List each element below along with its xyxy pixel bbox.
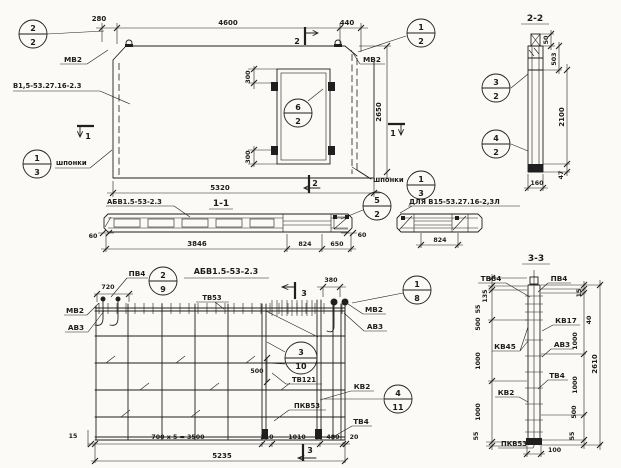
label-pkv53: ПКВ53 bbox=[294, 402, 320, 410]
callout-num: 1 bbox=[418, 23, 424, 32]
embed-mark bbox=[401, 216, 405, 220]
panel-outline bbox=[113, 46, 374, 179]
callout-1-2: 1 2 bbox=[407, 19, 435, 47]
callout-den: 2 bbox=[418, 37, 424, 46]
dim-right-1000a: 1000 bbox=[572, 332, 579, 350]
door-loop bbox=[328, 82, 335, 91]
label-mv2-left: МВ2 bbox=[64, 55, 82, 64]
callout-6-2: 6 2 bbox=[284, 99, 312, 127]
section-3-3-view: 3-3 ТВ84 ПВ4 КВ17 АВ3 КВ45 ТВ4 КВ2 ПКВ53… bbox=[473, 254, 603, 457]
callout-4-11: 4 11 bbox=[384, 385, 412, 413]
column-inner bbox=[529, 46, 539, 164]
dim-4600: 4600 bbox=[218, 19, 238, 27]
callout-num: 1 bbox=[418, 175, 424, 184]
callout-den: 8 bbox=[414, 294, 420, 303]
section-mark-3-bottom: 3 bbox=[307, 446, 313, 455]
dim-500-cage: 500 bbox=[250, 368, 264, 375]
door-opening bbox=[277, 69, 330, 164]
callout-2-2: 2 2 bbox=[19, 20, 47, 48]
s11-leaders bbox=[106, 206, 363, 219]
callout-num: 5 bbox=[374, 196, 380, 205]
label-kv45: КВ45 bbox=[494, 342, 516, 351]
panel-hidden-edges bbox=[119, 54, 357, 175]
callout-num: 2 bbox=[30, 24, 36, 33]
callout-3-2: 3 2 bbox=[482, 74, 510, 102]
label-kv2-s33: КВ2 bbox=[498, 388, 515, 397]
label-detail: ДЛЯ В15-53.27.16-2,3Л bbox=[409, 198, 500, 206]
void bbox=[182, 219, 208, 227]
embed-mark bbox=[455, 216, 459, 220]
dim-left-500: 500 bbox=[475, 317, 482, 331]
panel-dim-lines bbox=[96, 23, 391, 197]
void bbox=[114, 219, 140, 227]
label-pkv53-s33: ПКВ53 bbox=[501, 440, 527, 448]
callout-den: 10 bbox=[295, 362, 307, 371]
section-2-2-title: 2-2 bbox=[527, 14, 543, 24]
dim-15: 15 bbox=[69, 433, 78, 440]
dim-5235: 5235 bbox=[212, 452, 232, 460]
dim-right-40: 40 bbox=[586, 315, 593, 324]
embed-mark bbox=[333, 215, 337, 219]
door-loop bbox=[271, 82, 278, 91]
dim-left-55b: 55 bbox=[473, 432, 480, 441]
callout-4-2: 4 2 bbox=[482, 130, 510, 158]
cage-chords bbox=[95, 308, 345, 440]
label-shponki-left: шпонки bbox=[56, 159, 87, 167]
hook-head bbox=[116, 297, 121, 302]
label-mv2-cage-left: МВ2 bbox=[66, 306, 84, 315]
callout-den: 3 bbox=[418, 189, 424, 198]
section-mark-2-top: 2 bbox=[294, 37, 300, 46]
strip-outline bbox=[104, 214, 352, 232]
detail-outline bbox=[397, 214, 482, 232]
dim-480: 480 bbox=[326, 434, 340, 441]
loop-anchor bbox=[334, 44, 342, 47]
label-mv2-cage-right: МВ2 bbox=[365, 305, 383, 314]
callout-den: 3 bbox=[34, 168, 40, 177]
door-opening-inner bbox=[281, 73, 326, 160]
dim-380: 380 bbox=[324, 277, 338, 284]
label-tv53: ТВ53 bbox=[202, 294, 222, 302]
dim-210: 210 bbox=[260, 434, 274, 441]
dim-824-detail: 824 bbox=[433, 237, 447, 244]
label-shponki-right: шпонки bbox=[373, 176, 404, 184]
label-tv4-s33: ТВ4 bbox=[549, 371, 565, 380]
callout-num: 3 bbox=[493, 78, 499, 87]
cage-cross-bar-ticks bbox=[99, 303, 342, 314]
base-fill bbox=[528, 164, 543, 172]
void bbox=[216, 219, 242, 227]
dim-503: 503 bbox=[551, 52, 558, 65]
section-mark-1-right: 1 bbox=[390, 129, 396, 138]
dim-3846: 3846 bbox=[187, 240, 207, 248]
label-pv4-s33: ПВ4 bbox=[551, 274, 568, 283]
section-mark-2-bottom: 2 bbox=[312, 179, 318, 188]
loop-anchor bbox=[125, 44, 133, 47]
panel-leader-lines bbox=[13, 31, 406, 179]
drawing-sheet: 280 4600 440 5320 2650 300 300 МВ2 МВ2 В… bbox=[0, 0, 621, 468]
label-av3-cage-right: АВ3 bbox=[367, 322, 383, 331]
dim-47: 47 bbox=[558, 171, 565, 180]
callout-shponki-left: 1 3 bbox=[23, 150, 51, 178]
callout-num: 2 bbox=[160, 271, 166, 280]
dim-left-135: 135 bbox=[482, 289, 489, 302]
dim-right-500: 500 bbox=[571, 405, 578, 419]
label-panel-mark: В1,5-53.27.16-2.3 bbox=[13, 82, 82, 90]
void bbox=[250, 219, 274, 227]
callout-1-8: 1 8 bbox=[403, 276, 431, 304]
dim-440: 440 bbox=[340, 19, 355, 27]
dim-1010: 1010 bbox=[288, 434, 306, 441]
callout-3-10: 3 10 bbox=[285, 342, 317, 374]
s11-dim-lines bbox=[98, 233, 357, 252]
hook-head bbox=[101, 297, 106, 302]
cage-title: АБВ1.5-53-2.3 bbox=[194, 267, 259, 276]
callout-den: 11 bbox=[392, 403, 404, 412]
dim-left-1000a: 1000 bbox=[475, 352, 482, 370]
callout-shponki-right: 1 3 bbox=[407, 171, 435, 199]
callout-num: 4 bbox=[395, 389, 401, 398]
base-fill bbox=[526, 438, 542, 445]
detail-v15-view: ДЛЯ В15-53.27.16-2,3Л 824 bbox=[397, 198, 520, 248]
callout-num: 4 bbox=[493, 134, 499, 143]
label-kv17: КВ17 bbox=[555, 316, 577, 325]
s33-dim-lines bbox=[486, 274, 602, 457]
corner-embed bbox=[315, 429, 322, 439]
label-tv84: ТВ84 bbox=[481, 274, 502, 283]
label-pv4: ПВ4 bbox=[129, 269, 146, 278]
dim-300-bottom: 300 bbox=[245, 150, 252, 164]
cage-view: АБВ1.5-53-2.3 ПВ4 ТВ53 МВ2 АВ3 МВ2 АВ3 Т… bbox=[64, 267, 431, 464]
dim-100: 100 bbox=[548, 447, 562, 454]
label-tv121: ТВ121 bbox=[292, 376, 316, 384]
section-cut-bars bbox=[77, 27, 405, 193]
section-2-2-view: 2-2 50 503 2100 47 160 3 2 4 2 bbox=[482, 14, 570, 191]
label-mv2-right: МВ2 bbox=[363, 55, 381, 64]
door-loop bbox=[328, 146, 335, 155]
label-av3-cage-left: АВ3 bbox=[68, 323, 84, 332]
dim-720: 720 bbox=[101, 284, 115, 291]
hook-head bbox=[331, 299, 338, 306]
dim-300-top: 300 bbox=[245, 70, 252, 84]
dim-60-right: 60 bbox=[358, 232, 367, 239]
callout-num: 1 bbox=[34, 154, 40, 163]
loop-hatch bbox=[531, 34, 540, 46]
dim-50: 50 bbox=[543, 35, 550, 44]
dim-824: 824 bbox=[298, 241, 312, 248]
dim-20: 20 bbox=[350, 434, 359, 441]
section-mark-3-top: 3 bbox=[301, 289, 307, 298]
dim-left-1000b: 1000 bbox=[475, 403, 482, 421]
callout-den: 2 bbox=[374, 210, 380, 219]
callout-den: 2 bbox=[295, 117, 301, 126]
callout-num: 1 bbox=[414, 280, 420, 289]
label-av3-s33: АВ3 bbox=[554, 340, 570, 349]
callout-num: 3 bbox=[298, 348, 304, 357]
cage-door-zone bbox=[266, 300, 318, 337]
section-1-1-title: 1-1 bbox=[213, 199, 229, 209]
panel-dim-ticks bbox=[99, 25, 390, 196]
callout-5-2: 5 2 bbox=[363, 192, 391, 220]
hook-head bbox=[342, 299, 349, 306]
label-cage-mark: АБВ1.5-53-2.3 bbox=[107, 198, 162, 206]
cage-hooks bbox=[95, 298, 345, 332]
cage-verticals bbox=[96, 300, 345, 440]
label-kv2: КВ2 bbox=[354, 382, 371, 391]
dim-2650: 2650 bbox=[375, 102, 383, 122]
callout-den: 2 bbox=[493, 92, 499, 101]
dim-right-55: 55 bbox=[569, 432, 576, 441]
dim-650: 650 bbox=[330, 241, 344, 248]
callout-den: 2 bbox=[493, 148, 499, 157]
cage-leaders bbox=[64, 278, 403, 437]
dim-60-left: 60 bbox=[89, 233, 98, 240]
label-tv4: ТВ4 bbox=[353, 417, 369, 426]
door-loop bbox=[271, 146, 278, 155]
drawing-canvas: 280 4600 440 5320 2650 300 300 МВ2 МВ2 В… bbox=[0, 0, 621, 468]
dim-280: 280 bbox=[92, 15, 107, 23]
dim-right-15: 15 bbox=[576, 289, 583, 298]
panel-elevation-view: 280 4600 440 5320 2650 300 300 МВ2 МВ2 В… bbox=[13, 15, 435, 199]
dim-5320: 5320 bbox=[210, 184, 230, 192]
callout-2-9: 2 9 bbox=[149, 267, 177, 295]
void bbox=[148, 219, 174, 227]
s33-dim-ticks bbox=[489, 275, 603, 457]
section-mark-1-left: 1 bbox=[85, 132, 91, 141]
dim-left-55a: 55 bbox=[475, 305, 482, 314]
dim-160: 160 bbox=[530, 180, 544, 187]
detail-dim-lines bbox=[400, 206, 520, 248]
dim-right-1000b: 1000 bbox=[572, 376, 579, 394]
strip-inner bbox=[105, 214, 348, 232]
section-1-1-view: 1-1 АБВ1.5-53-2.3 60 3846 824 650 60 5 2 bbox=[89, 192, 391, 252]
callout-den: 9 bbox=[160, 285, 166, 294]
dim-total-2610: 2610 bbox=[591, 354, 599, 374]
callout-den: 2 bbox=[30, 38, 36, 47]
dim-2100: 2100 bbox=[558, 107, 566, 127]
callout-num: 6 bbox=[295, 103, 301, 112]
dim-700x5: 700 x 5 = 3500 bbox=[151, 434, 205, 441]
detail-inner bbox=[399, 214, 478, 232]
section-3-3-title: 3-3 bbox=[528, 254, 544, 264]
column-outline bbox=[528, 46, 543, 172]
